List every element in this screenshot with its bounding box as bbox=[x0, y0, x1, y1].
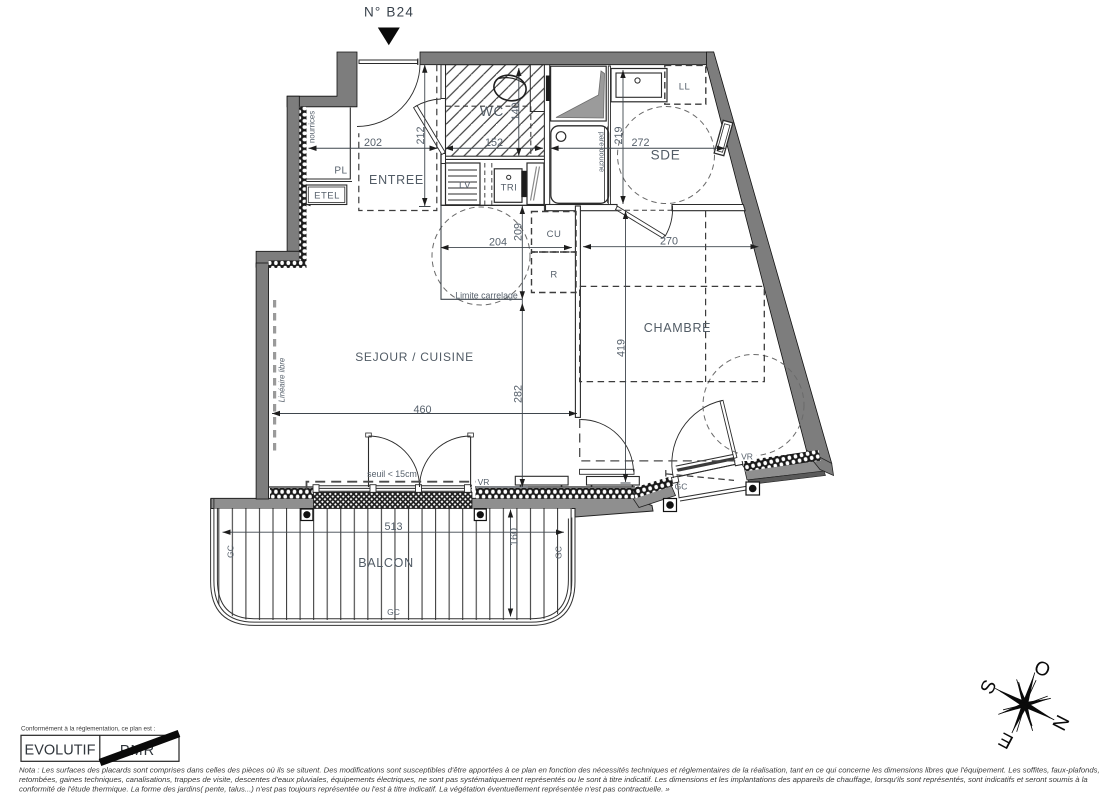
svg-text:conformité de l'étude thermiqu: conformité de l'étude thermique. La form… bbox=[19, 785, 670, 794]
svg-text:GC: GC bbox=[554, 546, 564, 559]
svg-text:GC: GC bbox=[226, 545, 236, 558]
svg-text:TRI: TRI bbox=[501, 183, 518, 194]
svg-text:219: 219 bbox=[613, 126, 625, 144]
svg-text:513: 513 bbox=[384, 521, 402, 533]
svg-text:212: 212 bbox=[415, 126, 427, 144]
svg-text:160: 160 bbox=[509, 528, 521, 546]
svg-text:GC: GC bbox=[387, 607, 400, 617]
svg-text:N° B24: N° B24 bbox=[364, 5, 414, 20]
svg-text:SDE: SDE bbox=[651, 148, 681, 163]
svg-text:419: 419 bbox=[616, 339, 628, 357]
svg-text:LV: LV bbox=[459, 180, 471, 191]
svg-text:272: 272 bbox=[631, 137, 649, 149]
svg-text:retombées, gaines techniques,: retombées, gaines techniques, canalisati… bbox=[19, 775, 1088, 784]
svg-text:EVOLUTIF: EVOLUTIF bbox=[25, 743, 96, 759]
svg-text:209: 209 bbox=[513, 223, 525, 241]
svg-text:460: 460 bbox=[413, 404, 431, 416]
svg-text:204: 204 bbox=[489, 237, 507, 249]
svg-text:VR: VR bbox=[741, 452, 753, 462]
svg-text:SEJOUR / CUISINE: SEJOUR / CUISINE bbox=[355, 350, 474, 364]
svg-text:Nota : Les surfaces des placar: Nota : Les surfaces des placards sont co… bbox=[19, 766, 1100, 775]
svg-text:CU: CU bbox=[547, 229, 562, 240]
svg-text:PL: PL bbox=[334, 166, 347, 177]
svg-text:282: 282 bbox=[513, 385, 525, 403]
svg-text:Conformément à la réglementati: Conformément à la réglementation, ce pla… bbox=[21, 726, 156, 733]
svg-text:270: 270 bbox=[660, 236, 678, 248]
svg-text:BALCON: BALCON bbox=[358, 556, 414, 570]
svg-text:Limite carrelage: Limite carrelage bbox=[455, 290, 518, 300]
svg-text:140: 140 bbox=[510, 102, 522, 120]
svg-text:seuil < 15cm: seuil < 15cm bbox=[367, 469, 417, 479]
svg-text:WC: WC bbox=[480, 104, 504, 119]
svg-text:VR: VR bbox=[478, 477, 490, 487]
svg-text:ETEL: ETEL bbox=[314, 190, 340, 201]
svg-text:LL: LL bbox=[679, 82, 691, 93]
svg-text:ENTREE: ENTREE bbox=[369, 173, 424, 187]
svg-text:152: 152 bbox=[485, 137, 503, 149]
svg-text:202: 202 bbox=[364, 137, 382, 149]
svg-text:Linéaire libre: Linéaire libre bbox=[278, 357, 287, 402]
svg-text:R: R bbox=[550, 269, 557, 280]
svg-text:GC: GC bbox=[675, 482, 688, 492]
svg-text:pare-douche: pare-douche bbox=[598, 132, 607, 172]
svg-text:nourrices: nourrices bbox=[308, 111, 317, 143]
svg-text:CHAMBRE: CHAMBRE bbox=[644, 321, 711, 335]
